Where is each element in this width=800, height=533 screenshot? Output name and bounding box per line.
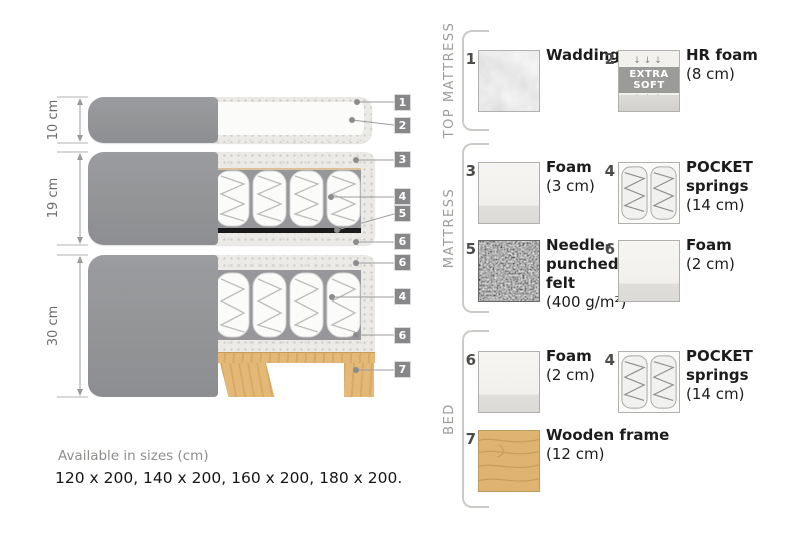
foam-swatch [478, 162, 540, 224]
bed-construction-infographic: 10 cm 19 cm 30 cm 1 2 3 4 5 6 6 4 6 7 TO… [0, 0, 800, 533]
pocket-springs-swatch [618, 351, 680, 413]
availability-note: Available in sizes (cm) [58, 448, 209, 464]
foam-swatch [478, 351, 540, 413]
pocket-springs-swatch [618, 162, 680, 224]
legend-item-number: 6 [462, 351, 476, 369]
legend-item-number: 4 [601, 162, 615, 180]
wooden-frame-swatch [478, 430, 540, 492]
legend-item-number: 3 [462, 162, 476, 180]
legend-item-number: 1 [462, 50, 476, 68]
hr-foam-swatch: ↓↓↓ EXTRA SOFT ↑↑↑ [618, 50, 680, 112]
available-sizes-list: 120 x 200, 140 x 200, 160 x 200, 180 x 2… [55, 469, 402, 487]
dimension-label-19cm: 19 cm [46, 168, 62, 228]
callout-chip-4: 4 [394, 188, 411, 205]
legend-item-number: 2 [601, 50, 615, 68]
foam-base-strip [619, 95, 679, 111]
legend-section-title-bed: BED [442, 354, 458, 484]
legend-section-title-top-mattress: TOP MATTRESS [442, 15, 458, 145]
legend-item-number: 6 [601, 240, 615, 258]
extra-soft-badge: EXTRA SOFT [619, 67, 679, 93]
callout-chip-4b: 4 [394, 288, 411, 305]
legend-section-title-mattress: MATTRESS [442, 163, 458, 293]
callout-chip-3: 3 [394, 151, 411, 168]
callout-chip-5: 5 [394, 205, 411, 222]
callout-chip-6b: 6 [394, 254, 411, 271]
legend-item-label: POCKET springs (14 cm) [686, 347, 766, 404]
callout-chip-7: 7 [394, 361, 411, 378]
legend-item-label: POCKET springs (14 cm) [686, 158, 766, 215]
callout-chip-6c: 6 [394, 327, 411, 344]
callout-chip-6a: 6 [394, 233, 411, 250]
legend-item-number: 7 [462, 430, 476, 448]
foam-swatch [618, 240, 680, 302]
legend-item-number: 5 [462, 240, 476, 258]
legend-item-label: HR foam (8 cm) [686, 46, 796, 84]
legend-item-label: Wooden frame (12 cm) [546, 426, 706, 464]
dimension-label-10cm: 10 cm [46, 90, 62, 150]
wadding-swatch [478, 50, 540, 112]
legend-item-label: Foam (2 cm) [686, 236, 796, 274]
legend-item-number: 4 [601, 351, 615, 369]
needle-punched-felt-swatch [478, 240, 540, 302]
callout-chip-2: 2 [394, 117, 411, 134]
callout-chip-1: 1 [394, 94, 411, 111]
dimension-label-30cm: 30 cm [46, 296, 62, 356]
compression-arrows-down: ↓↓↓ [619, 56, 679, 66]
